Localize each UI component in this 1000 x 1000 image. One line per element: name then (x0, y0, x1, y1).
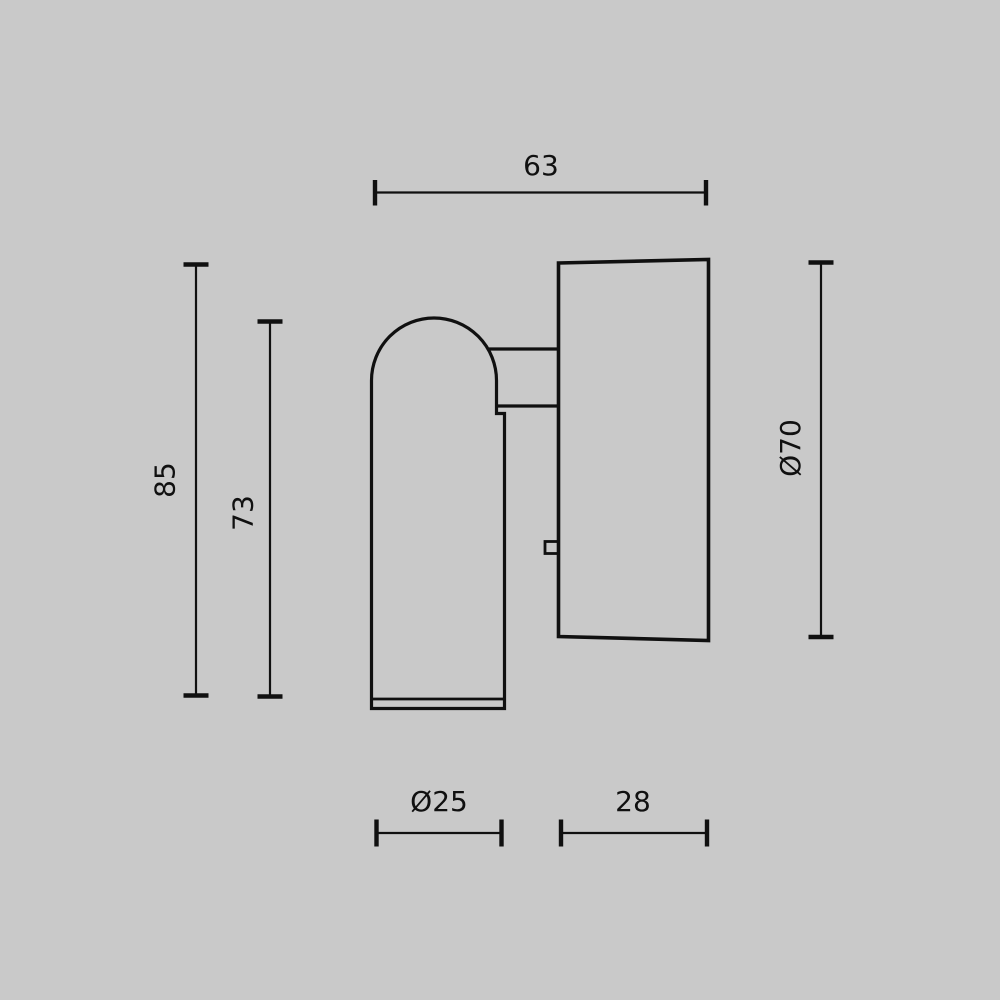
dimension-label: Ø70 (774, 419, 807, 477)
dimension-label: 85 (149, 462, 182, 498)
dimension-label: 28 (615, 785, 651, 818)
dimension-head-height: 73 (227, 322, 283, 697)
fixture-drawing (372, 260, 709, 709)
dimension-base-depth: 28 (561, 785, 707, 847)
mount-clip-detail (545, 542, 559, 554)
dimension-label: Ø25 (410, 785, 468, 818)
mount-base-outline (559, 260, 709, 641)
dimension-width-top: 63 (375, 149, 706, 206)
lamp-head-outline (372, 318, 505, 708)
lamp-dimension-diagram: 63 85 73 Ø70 Ø25 (0, 0, 1000, 1000)
dimension-label: 63 (523, 149, 559, 182)
technical-drawing-page: 63 85 73 Ø70 Ø25 (0, 0, 1000, 1000)
dimension-head-diameter: Ø25 (377, 785, 502, 847)
dimension-label: 73 (227, 495, 260, 531)
dimension-base-diameter: Ø70 (774, 263, 834, 638)
dimension-overall-height: 85 (149, 265, 209, 696)
